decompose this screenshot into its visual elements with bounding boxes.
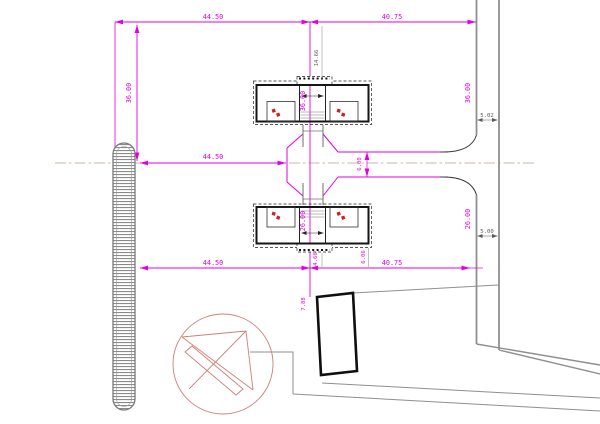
label-porch-offset-b: 6.06 — [361, 250, 367, 263]
label-top-span-right: 40.75 — [382, 13, 402, 21]
fixtures-south — [272, 212, 346, 220]
label-right-depth-upper: 36.00 — [464, 83, 472, 103]
symbol-line-a — [182, 331, 246, 337]
label-center-depth-lower: 26.00 — [299, 211, 307, 231]
label-bottom-span-right: 40.75 — [382, 259, 402, 267]
label-mid-span: 44.50 — [203, 153, 223, 161]
building-south — [254, 204, 372, 252]
retaining-wall-strip — [113, 143, 135, 410]
site-plan-drawing: 44.50 40.75 44.50 44.50 40.75 36.00 36.0… — [0, 0, 600, 424]
label-center-depth-upper: 36.00 — [299, 91, 307, 111]
label-substation-offset: 7.88 — [301, 297, 307, 311]
access-road-corner — [250, 352, 293, 394]
driveways — [303, 125, 323, 205]
site-plan-canvas: 44.50 40.75 44.50 44.50 40.75 36.00 36.0… — [0, 0, 600, 424]
label-entry-depth: 14.66 — [314, 50, 320, 67]
dimension-lines — [115, 22, 483, 297]
label-bottom-span-left: 44.50 — [203, 259, 223, 267]
road-fillet-upper — [440, 135, 477, 152]
label-top-span-left: 44.50 — [203, 13, 223, 21]
room-north-west — [267, 102, 295, 122]
small-dims — [322, 26, 498, 267]
turning-symbol — [173, 314, 273, 414]
label-right-depth-lower: 26.00 — [464, 209, 472, 229]
access-road-edge-lower — [293, 394, 600, 411]
label-porch-offset-a: 4.66 — [313, 252, 319, 265]
label-left-depth: 36.00 — [125, 83, 133, 103]
crossing-chamfer-tr — [323, 134, 338, 152]
walls-north — [257, 85, 369, 122]
symbol-line-c — [182, 337, 253, 390]
crossing-chamfer-tl — [287, 134, 303, 148]
building-north — [254, 77, 372, 125]
fixtures-north — [272, 109, 346, 117]
symbol-line-d — [189, 331, 246, 389]
room-south-west — [267, 207, 295, 227]
label-edge-offset-upper: 5.02 — [480, 113, 493, 119]
symbol-circle — [173, 314, 273, 414]
dimension-labels: 44.50 40.75 44.50 44.50 40.75 36.00 36.0… — [125, 13, 494, 311]
symbol-line-b — [246, 331, 253, 390]
road-outline — [287, 134, 448, 196]
roof-outline-south — [254, 204, 372, 248]
access-road-edge-upper — [322, 383, 600, 398]
label-edge-offset-lower: 5.00 — [480, 229, 493, 235]
boundary-inner-bend — [477, 344, 600, 365]
crossing-chamfer-br — [323, 177, 338, 196]
symbol-slash — [185, 346, 243, 395]
road-fillets — [440, 135, 477, 195]
label-road-width: 6.00 — [357, 157, 363, 170]
boundary-lines — [250, 0, 600, 411]
room-north-east — [330, 102, 358, 122]
substation-outline — [317, 293, 357, 375]
stairs-north — [301, 112, 325, 118]
road-fillet-lower — [440, 177, 477, 195]
crossing-chamfer-bl — [287, 182, 303, 196]
